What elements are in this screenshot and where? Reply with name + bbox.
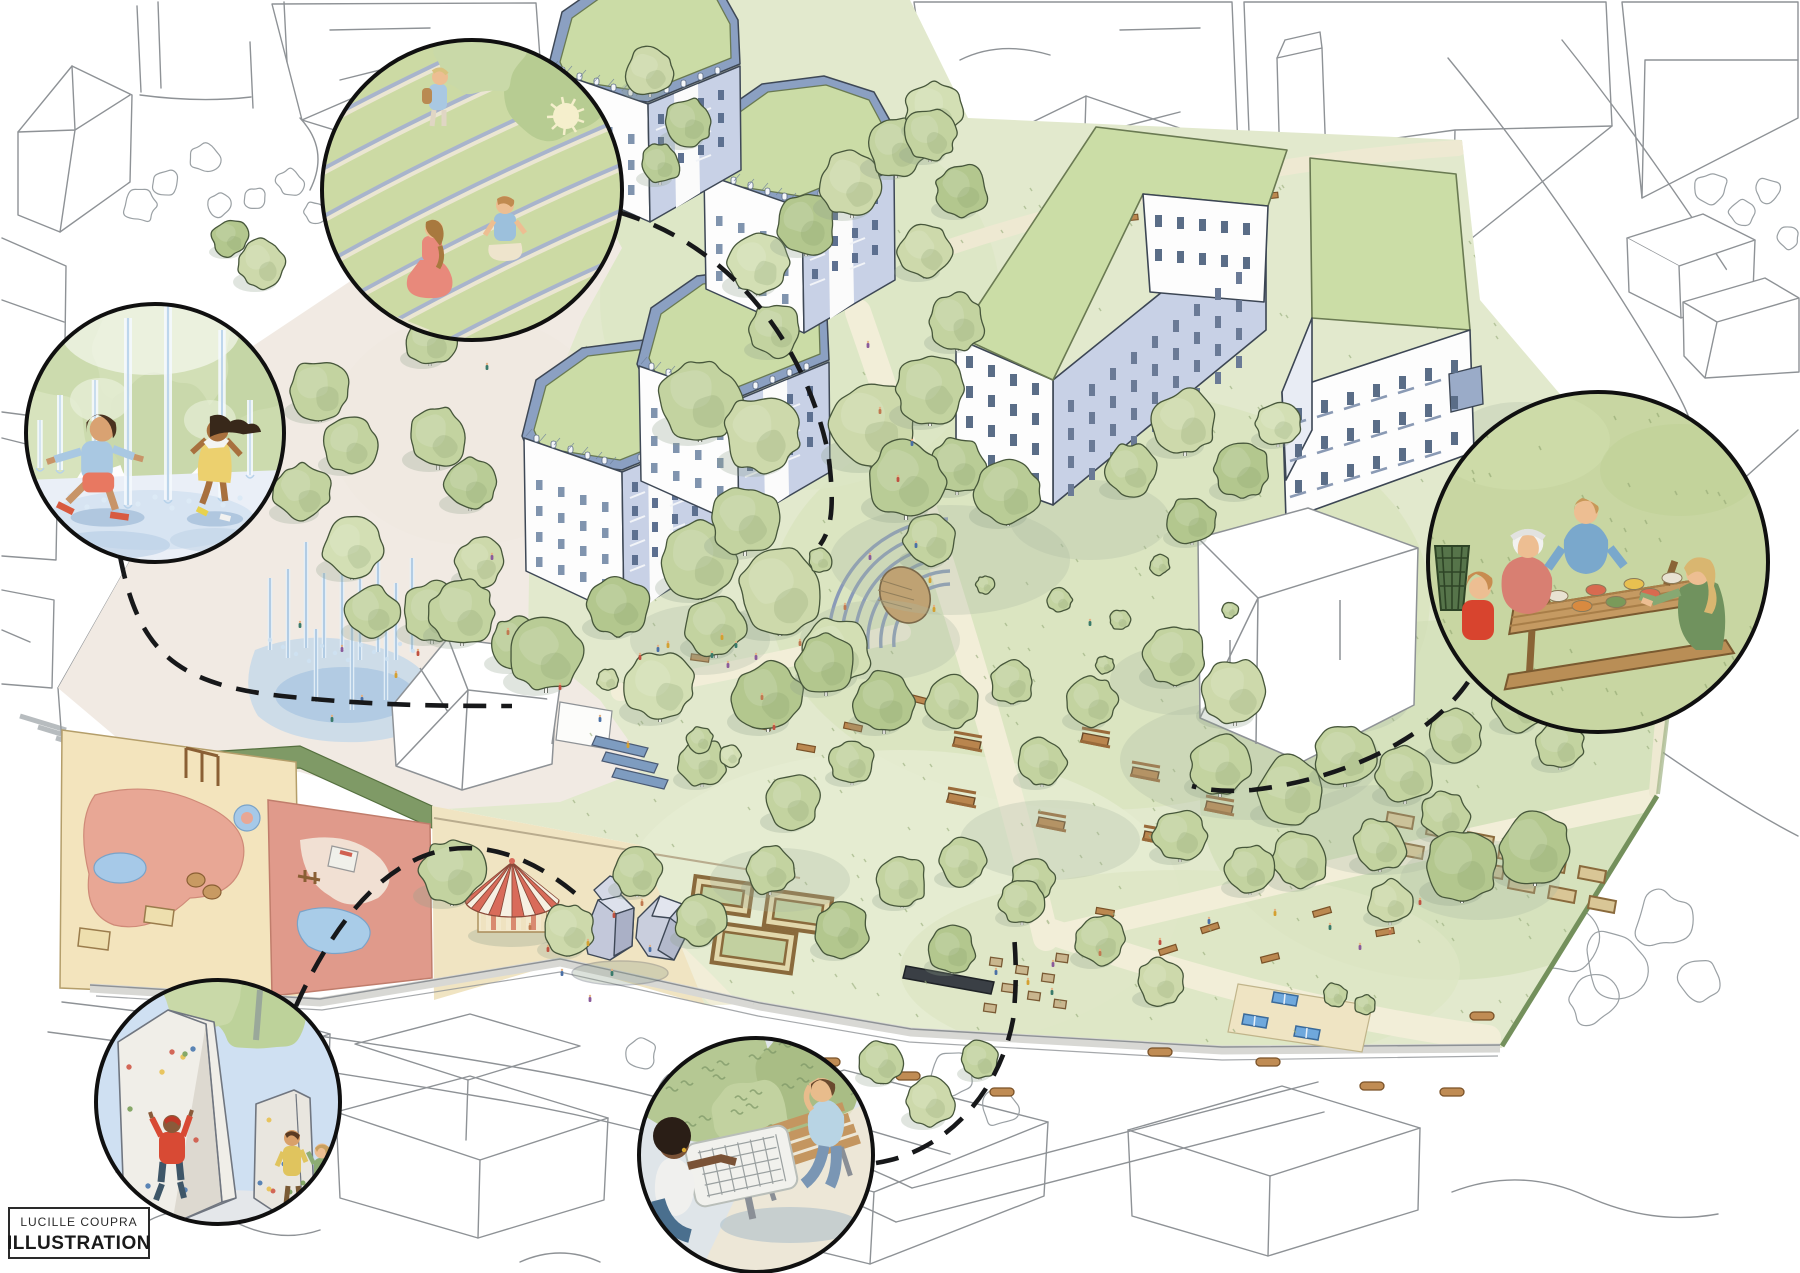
svg-text:ILLUSTRATION: ILLUSTRATION <box>7 1233 151 1254</box>
svg-text:LUCILLE COUPRA: LUCILLE COUPRA <box>20 1215 137 1229</box>
